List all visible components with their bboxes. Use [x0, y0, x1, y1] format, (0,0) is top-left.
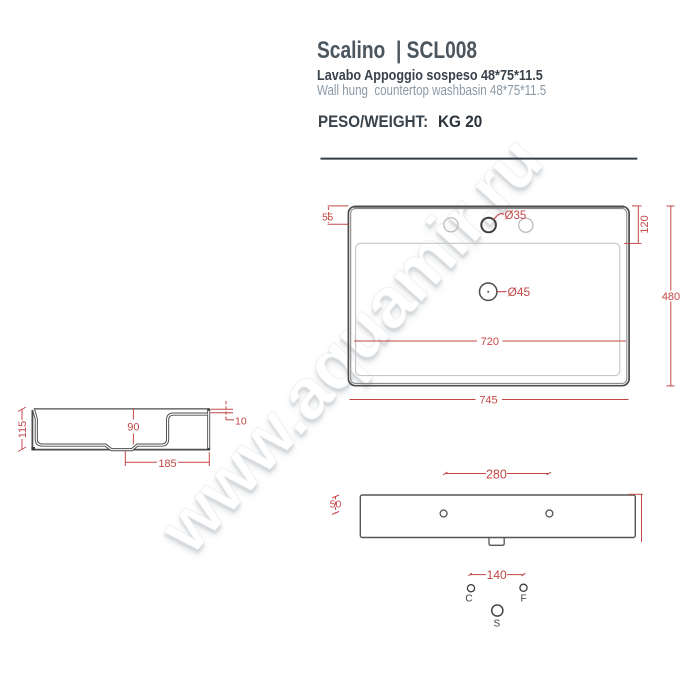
svg-text:Ø45: Ø45: [508, 285, 531, 299]
svg-text:10: 10: [235, 416, 247, 428]
svg-text:90: 90: [127, 422, 139, 434]
svg-text:115: 115: [17, 421, 29, 439]
svg-text:120: 120: [639, 215, 651, 233]
svg-text:S: S: [493, 619, 500, 630]
svg-text:55: 55: [322, 213, 334, 224]
svg-text:50: 50: [330, 499, 342, 511]
svg-text:185: 185: [158, 458, 176, 470]
svg-text:280: 280: [486, 468, 507, 482]
svg-text:C: C: [465, 594, 472, 605]
svg-text:140: 140: [487, 568, 507, 582]
svg-text:745: 745: [479, 395, 497, 407]
svg-text:Ø35: Ø35: [505, 210, 527, 222]
svg-text:F: F: [520, 594, 526, 605]
svg-text:720: 720: [481, 336, 499, 348]
svg-text:480: 480: [662, 291, 680, 303]
